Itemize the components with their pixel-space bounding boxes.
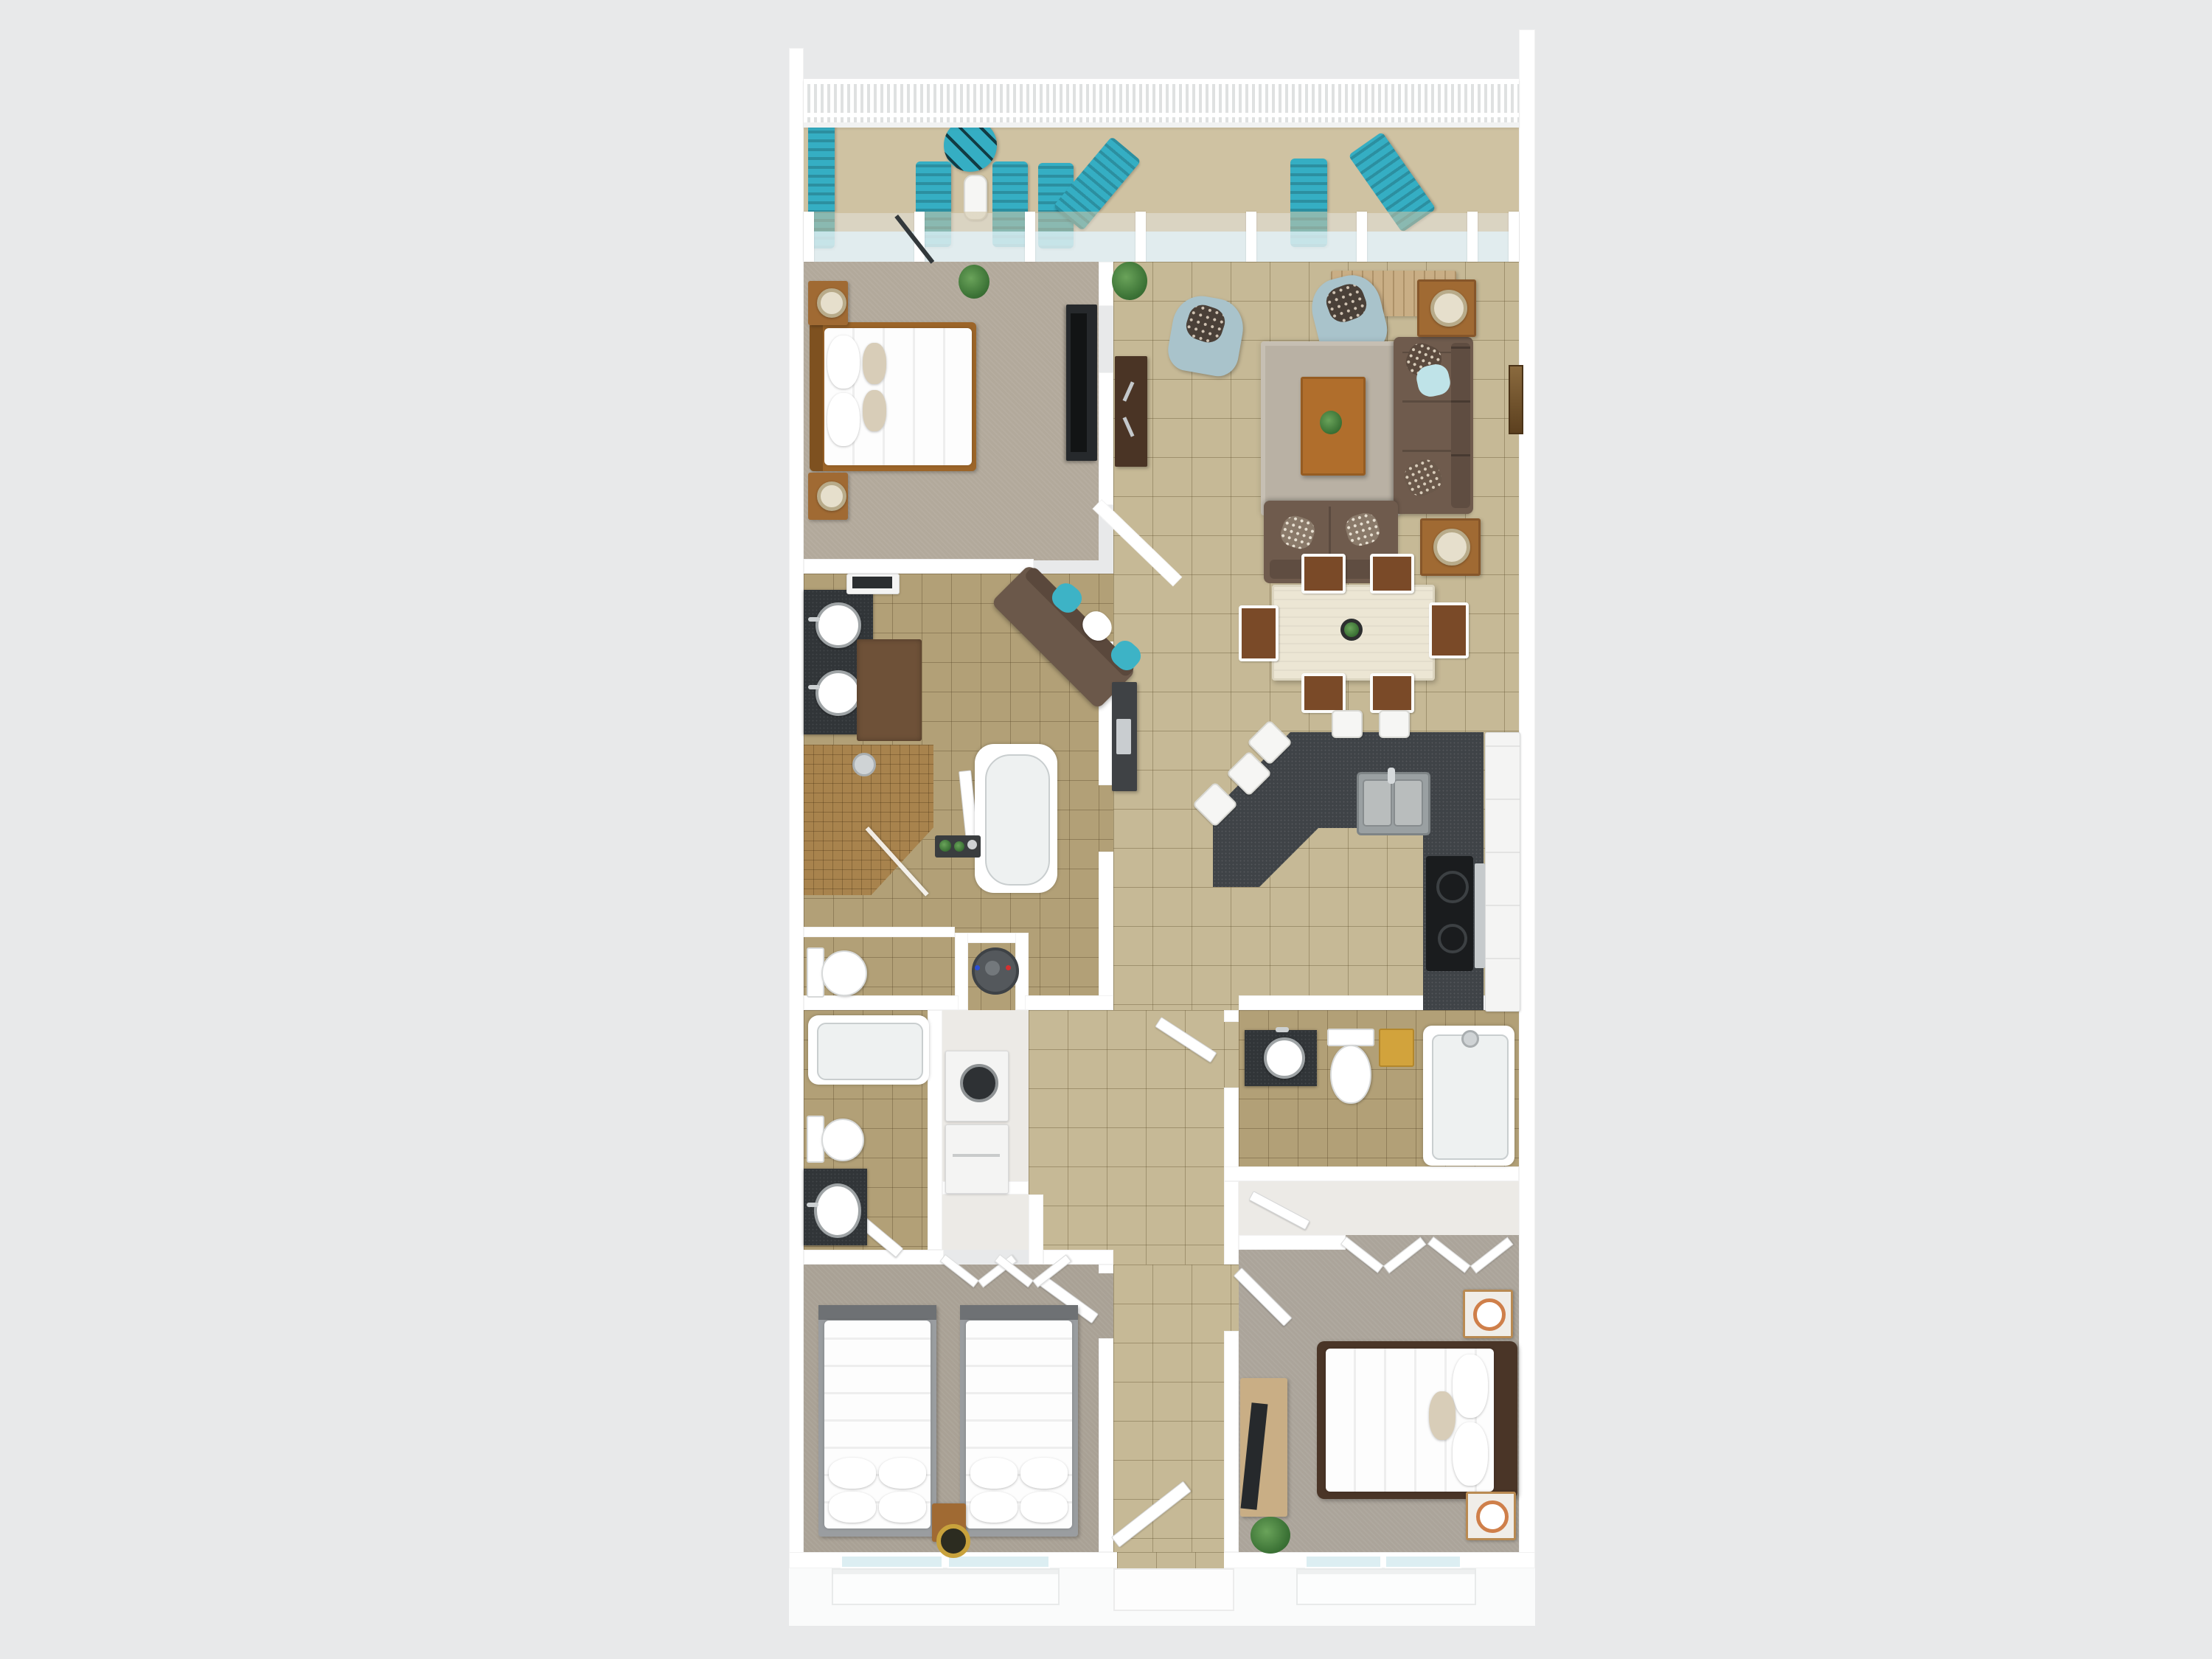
- table-lamp: [817, 481, 846, 511]
- master-bath-wall-bottom: [1025, 995, 1113, 1010]
- master-bath-wall-right: [1099, 852, 1113, 1010]
- kitchen-cabinets: [1485, 732, 1520, 1012]
- master-bedroom-wall-right: [1099, 372, 1113, 505]
- living-potted-plant: [1112, 262, 1147, 300]
- glass-wall-frame: [1357, 212, 1367, 262]
- dining-centerpiece-plant: [1344, 622, 1359, 637]
- toilet-bowl: [1330, 1045, 1371, 1104]
- sink-faucet: [808, 685, 820, 689]
- cooktop-burner: [1438, 924, 1467, 953]
- buffet-tray: [1116, 719, 1131, 754]
- kitchen-sink-basin: [1363, 779, 1392, 827]
- bed2a-headrail: [818, 1305, 936, 1320]
- table-lamp: [1430, 290, 1467, 327]
- entry-threshold: [1113, 1568, 1234, 1611]
- vessel-sink: [815, 602, 861, 648]
- bath3-sink: [1264, 1037, 1305, 1079]
- glass-wall-frame: [1509, 212, 1519, 262]
- screenshot-canvas: { "meta": { "kind": "3d-floor-plan-rende…: [0, 0, 2212, 1659]
- bed3-accent-pillow: [1429, 1391, 1455, 1440]
- cooktop-burner: [1436, 871, 1469, 903]
- dining-chair: [1301, 673, 1346, 713]
- water-heater-cap: [985, 961, 1000, 975]
- toilet-bowl: [821, 950, 867, 996]
- glass-wall-frame: [1025, 212, 1035, 262]
- glass-wall-frame: [1135, 212, 1146, 262]
- master-bed-accent-pillow: [863, 390, 886, 431]
- bedroom2-window-sill: [832, 1568, 1060, 1605]
- freestanding-tub-interior: [985, 754, 1050, 886]
- wall-art: [1509, 365, 1523, 434]
- bed2a-pillow: [879, 1492, 926, 1523]
- kitchen-bar-stool: [1332, 710, 1363, 738]
- bedroom3-wall-left: [1224, 1181, 1239, 1265]
- master-bedroom-wall-right: [1099, 262, 1113, 306]
- master-bedroom-wall-bottom: [804, 559, 1034, 574]
- hall-console-table: [1115, 356, 1147, 467]
- bedroom3-window: [1385, 1555, 1461, 1568]
- coffee-table-plant: [1320, 411, 1342, 434]
- water-heater-valve-hot: [1006, 965, 1011, 970]
- railing-top-rail: [804, 113, 1519, 117]
- sink-faucet: [807, 1203, 818, 1207]
- master-bed-pillow: [827, 335, 860, 389]
- dining-chair: [1370, 673, 1414, 713]
- bath3-wall-bottom: [1224, 1166, 1519, 1181]
- master-bed-pillow: [827, 393, 860, 446]
- loveseat-seat-seam: [1329, 507, 1331, 560]
- toilet-bowl: [821, 1119, 864, 1161]
- bedroom3-lamp: [1476, 1500, 1509, 1533]
- bath3-wall-left: [1224, 1010, 1239, 1022]
- sofa-back-cushions: [1451, 343, 1470, 508]
- bedroom3-window: [1305, 1555, 1382, 1568]
- shower-head: [852, 753, 876, 776]
- bed3-pillow: [1453, 1354, 1488, 1418]
- kitchen-bar-stool: [1379, 710, 1410, 738]
- bedroom3-closet-wall: [1239, 1235, 1346, 1250]
- dining-chair: [1370, 554, 1414, 594]
- sink-faucet: [808, 617, 820, 622]
- exterior-wall-left: [789, 48, 804, 1568]
- bedroom3-fern-plant: [1251, 1517, 1290, 1554]
- vessel-sink: [815, 670, 861, 716]
- bedroom2-window: [841, 1555, 943, 1568]
- bedroom2-wall-top: [804, 1250, 944, 1265]
- bed2b-pillow: [970, 1458, 1018, 1489]
- glass-wall-frame: [1246, 212, 1256, 262]
- bed2b-headrail: [960, 1305, 1078, 1320]
- bedroom2-window: [947, 1555, 1050, 1568]
- bath3-tub-interior: [1432, 1034, 1509, 1160]
- dryer: [945, 1124, 1009, 1194]
- tray-plant: [954, 841, 964, 852]
- bedroom3-window-sill: [1296, 1568, 1476, 1605]
- bed2b-pillow: [1020, 1492, 1068, 1523]
- entry-opening: [1117, 1552, 1224, 1568]
- table-lamp: [1433, 529, 1470, 566]
- bedroom2-wall-right: [1099, 1265, 1113, 1273]
- master-bed-headboard: [810, 322, 823, 471]
- dryer-door-line: [953, 1154, 1000, 1157]
- master-bed-accent-pillow: [863, 343, 886, 384]
- dining-chair: [1239, 605, 1279, 661]
- range-hood-edge: [1475, 863, 1485, 968]
- floor-plan: [789, 18, 1535, 1633]
- linen-cabinet-top: [852, 577, 892, 588]
- table-lamp: [817, 288, 846, 318]
- bed2b-pillow: [970, 1492, 1018, 1523]
- kitchen-faucet: [1388, 768, 1395, 784]
- washer-door: [960, 1064, 998, 1102]
- toilet-tank: [1327, 1029, 1374, 1046]
- bed2a-pillow: [879, 1458, 926, 1489]
- dining-chair: [1429, 602, 1469, 658]
- bedroom3-wall-left: [1224, 1331, 1239, 1552]
- master-potted-plant: [959, 265, 990, 299]
- bedroom2-closet-floor: [942, 1194, 1029, 1250]
- sink-faucet: [1276, 1027, 1289, 1032]
- wc-divider-wall: [804, 927, 955, 937]
- bath2-wall-right: [928, 1010, 942, 1250]
- water-heater-valve-cold: [975, 965, 980, 970]
- yellow-hamper: [1379, 1029, 1414, 1067]
- bath2-sink: [814, 1183, 861, 1238]
- glass-wall-frame: [1467, 212, 1478, 262]
- bedroom2-wall-right: [1099, 1338, 1113, 1552]
- bath-rug: [857, 639, 922, 741]
- tub-faucet: [1461, 1030, 1479, 1048]
- bed2b-pillow: [1020, 1458, 1068, 1489]
- bedroom2-wall-top: [1043, 1250, 1113, 1265]
- exterior-wall-right: [1519, 29, 1535, 1568]
- kitchen-sink-basin: [1394, 779, 1423, 827]
- bedroom3-lamp: [1473, 1298, 1506, 1331]
- entry-tile-floor: [1113, 1265, 1239, 1552]
- bedroom2-closet-wall-right: [1029, 1194, 1043, 1265]
- bed2a-pillow: [829, 1492, 876, 1523]
- master-tv-screen: [1071, 313, 1087, 452]
- bed3-pillow: [1453, 1422, 1488, 1486]
- dining-chair: [1301, 554, 1346, 594]
- gold-lamp: [936, 1524, 970, 1558]
- bed2a-pillow: [829, 1458, 876, 1489]
- bath2-tub-interior: [817, 1023, 923, 1080]
- tray-plant: [939, 840, 951, 852]
- tray-candle: [967, 840, 977, 849]
- master-bath-wall-bottom: [804, 995, 959, 1010]
- glass-wall-frame: [804, 212, 814, 262]
- balcony-railing: [804, 79, 1519, 128]
